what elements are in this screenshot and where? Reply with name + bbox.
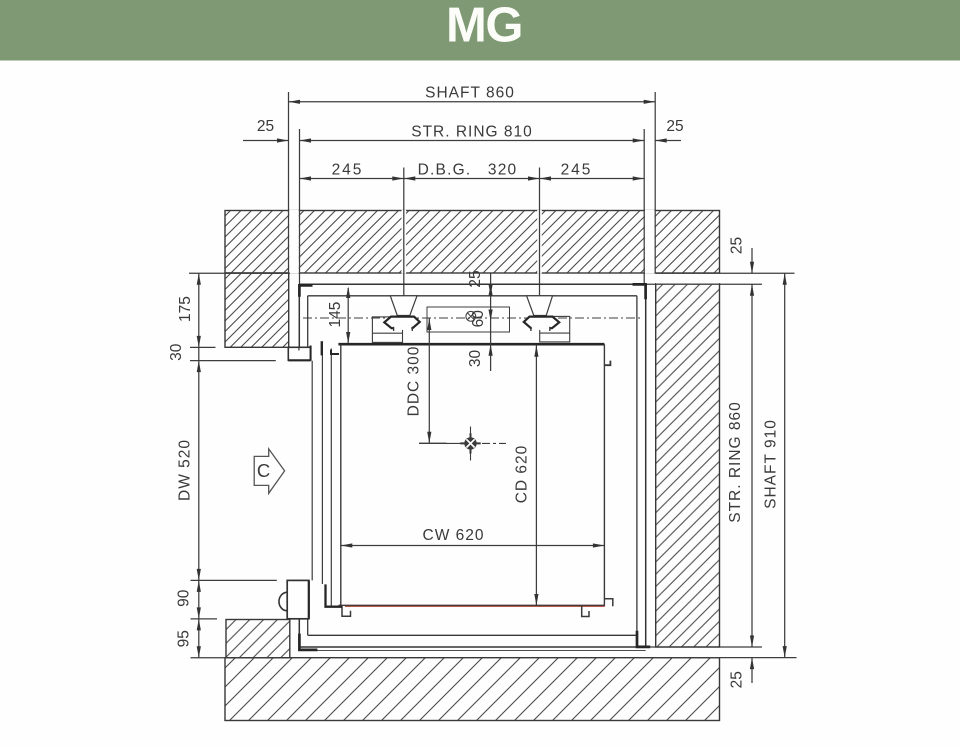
svg-text:145: 145 xyxy=(327,302,344,328)
svg-text:25: 25 xyxy=(257,118,274,135)
svg-text:245: 245 xyxy=(332,162,364,179)
svg-text:STR. RING 860: STR. RING 860 xyxy=(727,401,744,523)
svg-text:25: 25 xyxy=(467,270,484,287)
svg-text:175: 175 xyxy=(177,296,194,322)
svg-text:MG: MG xyxy=(446,0,522,53)
svg-text:SHAFT 860: SHAFT 860 xyxy=(425,85,515,102)
svg-text:CD 620: CD 620 xyxy=(514,445,531,504)
svg-text:D.B.G. 320: D.B.G. 320 xyxy=(418,162,518,179)
svg-text:25: 25 xyxy=(729,237,746,254)
svg-text:30: 30 xyxy=(168,343,185,361)
svg-text:DDC 300: DDC 300 xyxy=(406,346,423,417)
svg-text:C: C xyxy=(257,460,270,481)
svg-text:25: 25 xyxy=(729,671,746,688)
svg-text:CW 620: CW 620 xyxy=(423,527,485,544)
svg-text:60: 60 xyxy=(470,310,487,328)
svg-text:STR. RING 810: STR. RING 810 xyxy=(411,124,533,141)
svg-text:SHAFT 910: SHAFT 910 xyxy=(763,419,780,509)
svg-text:95: 95 xyxy=(176,630,193,647)
svg-text:25: 25 xyxy=(666,118,683,135)
svg-text:DW 520: DW 520 xyxy=(177,439,194,501)
svg-text:30: 30 xyxy=(467,350,484,368)
svg-text:245: 245 xyxy=(561,162,593,179)
svg-text:90: 90 xyxy=(176,589,193,607)
